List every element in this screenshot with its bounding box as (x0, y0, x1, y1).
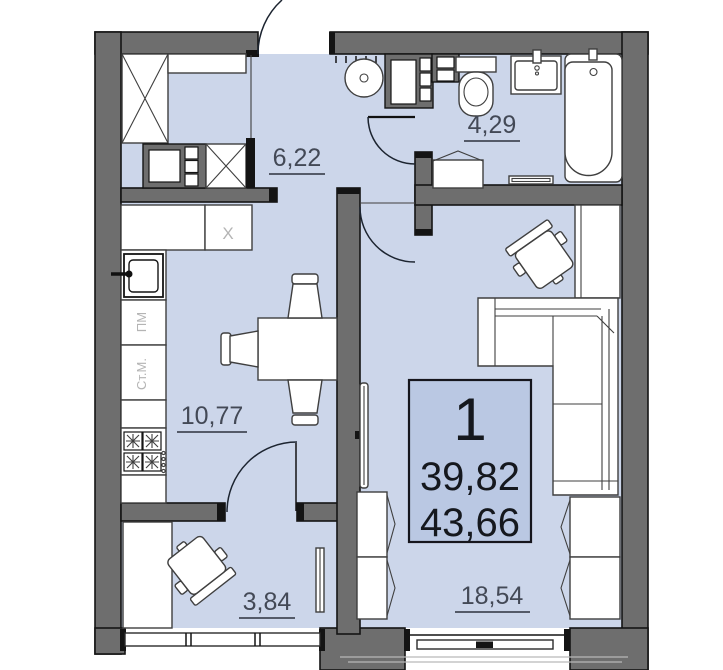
bathroom-sink-symbol (511, 50, 561, 94)
wall-bottom-right-pier (570, 628, 648, 670)
kitchen-area-label: 10,77 (181, 402, 244, 430)
wall-bottom-center-pier (320, 628, 405, 670)
washer-circle-symbol (345, 59, 383, 97)
wall-top-right (330, 32, 648, 54)
total-area-value: 43,66 (420, 501, 520, 545)
balcony-door-handle (476, 642, 493, 649)
apartment-number: 1 (453, 386, 486, 453)
stove-symbol (121, 428, 166, 475)
bathtub-symbol (565, 49, 622, 182)
closet-shelf (168, 54, 246, 73)
kitchen-cabinet (121, 400, 166, 428)
wardrobe-right-lower (561, 557, 620, 619)
wall-closet-bottom (121, 188, 277, 202)
radiator-panel (316, 548, 324, 612)
dishwasher-label: ПМ (134, 312, 149, 332)
washing-machine-label: Ст.М. (134, 358, 149, 390)
bath-mat-symbol (509, 176, 553, 184)
wardrobe-right-upper (561, 497, 620, 557)
dining-chair-bottom (288, 380, 322, 425)
wall-right (622, 32, 648, 670)
small-room-window (125, 633, 320, 646)
apartment-info-box: 1 39,82 43,66 (409, 380, 531, 545)
floor-plan-drawing: X ПМ Ст.М. (0, 0, 723, 670)
living-area-value: 39,82 (420, 455, 520, 499)
closet-sliding-door-panel (246, 138, 255, 188)
dining-chair-top (288, 274, 322, 318)
oven-unit-symbol (143, 144, 206, 188)
entrance-door-arc (258, 0, 282, 54)
dining-chair-left (221, 331, 258, 367)
kitchen-counter-top (121, 205, 205, 250)
kitchen-counter-bottom (121, 475, 166, 503)
closet-cabinet-symbol (206, 144, 246, 188)
hallway-area-label: 6,22 (273, 144, 322, 172)
kitchen-cabinet-x-mark: X (222, 224, 233, 243)
small-room-desk (123, 522, 172, 628)
bathroom-area-label: 4,29 (468, 111, 517, 139)
wall-kitchen-bottom-a (121, 503, 225, 521)
dining-table-symbol (258, 318, 337, 380)
living-room-desk (575, 205, 620, 298)
living-room-area-label: 18,54 (461, 582, 524, 610)
floor-plan-page: X ПМ Ст.М. (0, 0, 723, 670)
toilet-symbol (456, 57, 496, 116)
small-room-area-label: 3,84 (243, 588, 292, 616)
wall-left (95, 32, 121, 654)
